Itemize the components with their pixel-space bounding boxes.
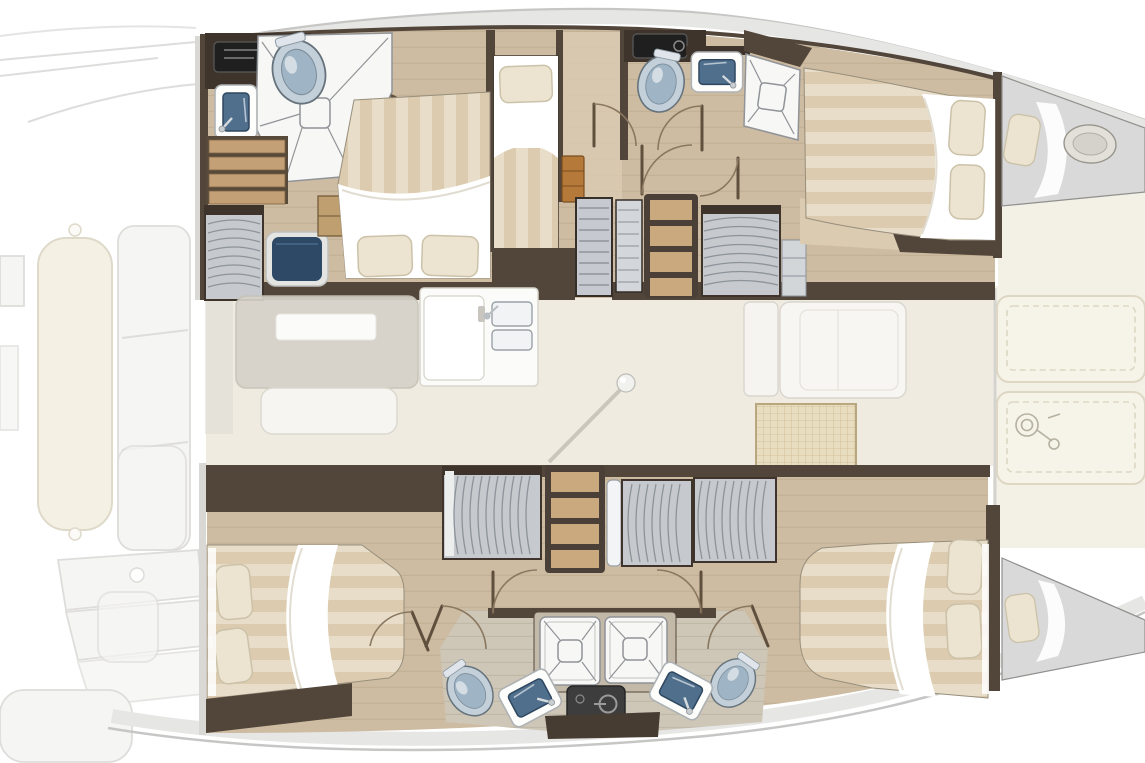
bottom-wardrobes — [443, 467, 776, 566]
wardrobe-top — [702, 206, 780, 214]
wardrobe — [622, 480, 692, 566]
top-steps — [206, 136, 288, 204]
berth-foot-locker — [492, 248, 576, 294]
top-stairs — [576, 198, 642, 296]
shower-drain — [623, 638, 647, 660]
sink-basin — [492, 330, 532, 350]
pillow — [215, 564, 254, 621]
mast-ball-highlight — [620, 377, 626, 383]
sun-pad — [118, 446, 186, 550]
galley-counter — [420, 288, 538, 386]
salon-bench — [261, 388, 397, 434]
deck-fitting — [130, 568, 144, 582]
drawers — [782, 240, 806, 296]
washbasin-icon — [691, 52, 742, 92]
table-edge-shadow — [205, 300, 233, 434]
pillow — [947, 539, 984, 595]
step — [209, 140, 285, 153]
counter-door — [424, 296, 484, 380]
deck-locker — [0, 346, 18, 430]
pillow — [499, 65, 552, 103]
step — [209, 157, 285, 170]
salon-table — [236, 296, 418, 434]
shelf — [551, 550, 599, 568]
washbasin-icon — [215, 85, 257, 139]
wardrobe-highlight — [445, 471, 454, 556]
wardrobe-top — [205, 206, 263, 215]
top-aft-cabin-bed — [338, 92, 490, 278]
sheet-edge — [982, 544, 989, 694]
pillow — [357, 235, 412, 277]
shower-drain — [757, 82, 786, 111]
step — [209, 174, 285, 187]
wardrobe-top — [443, 467, 541, 475]
sheet-edge — [208, 548, 216, 696]
stairs — [576, 198, 612, 296]
shower-drain — [558, 640, 582, 662]
pillow — [1004, 592, 1040, 643]
door-handle — [478, 306, 485, 322]
bottom-shelf-unit — [545, 465, 605, 573]
sink-basin — [492, 302, 532, 326]
bottom-fwd-cabin-bed — [800, 539, 989, 698]
floorplan-page — [0, 0, 1145, 763]
island-unit — [744, 302, 778, 396]
pillow — [946, 603, 983, 659]
shelf — [551, 498, 599, 518]
pillow — [948, 100, 986, 156]
top-shelf-unit — [644, 194, 698, 298]
deck-fitting — [69, 528, 81, 540]
shelf — [650, 226, 692, 246]
wood-cabinet — [562, 156, 584, 202]
faucet-icon — [484, 313, 491, 320]
pillow — [421, 235, 478, 277]
stern-cap — [199, 463, 206, 735]
aft-bench — [0, 690, 132, 762]
step — [209, 191, 285, 204]
table-leaf — [276, 314, 376, 340]
mast-ball-icon — [617, 374, 635, 392]
engine-recess — [545, 712, 660, 739]
pillow — [949, 164, 985, 219]
island-unit — [780, 302, 906, 398]
deck-fitting — [69, 224, 81, 236]
shelf — [650, 252, 692, 272]
shelf — [551, 524, 599, 544]
pillow — [212, 627, 253, 685]
galley-island — [744, 302, 906, 398]
table-top — [236, 296, 418, 388]
blanket — [494, 148, 558, 252]
side-seat-cushion — [38, 238, 112, 530]
shelf — [650, 200, 692, 220]
mirror — [607, 480, 621, 566]
shelf — [551, 472, 599, 492]
sun-pad — [98, 592, 158, 662]
foredeck-bench-1 — [997, 296, 1145, 382]
shelf — [650, 278, 692, 296]
floorplan-canvas — [0, 0, 1145, 763]
deck-locker — [0, 256, 24, 306]
inboard-wall-thick — [206, 465, 456, 512]
foredeck-bench-2 — [997, 392, 1145, 484]
shower-stall-right — [605, 617, 667, 683]
top-wardrobe — [205, 206, 263, 300]
